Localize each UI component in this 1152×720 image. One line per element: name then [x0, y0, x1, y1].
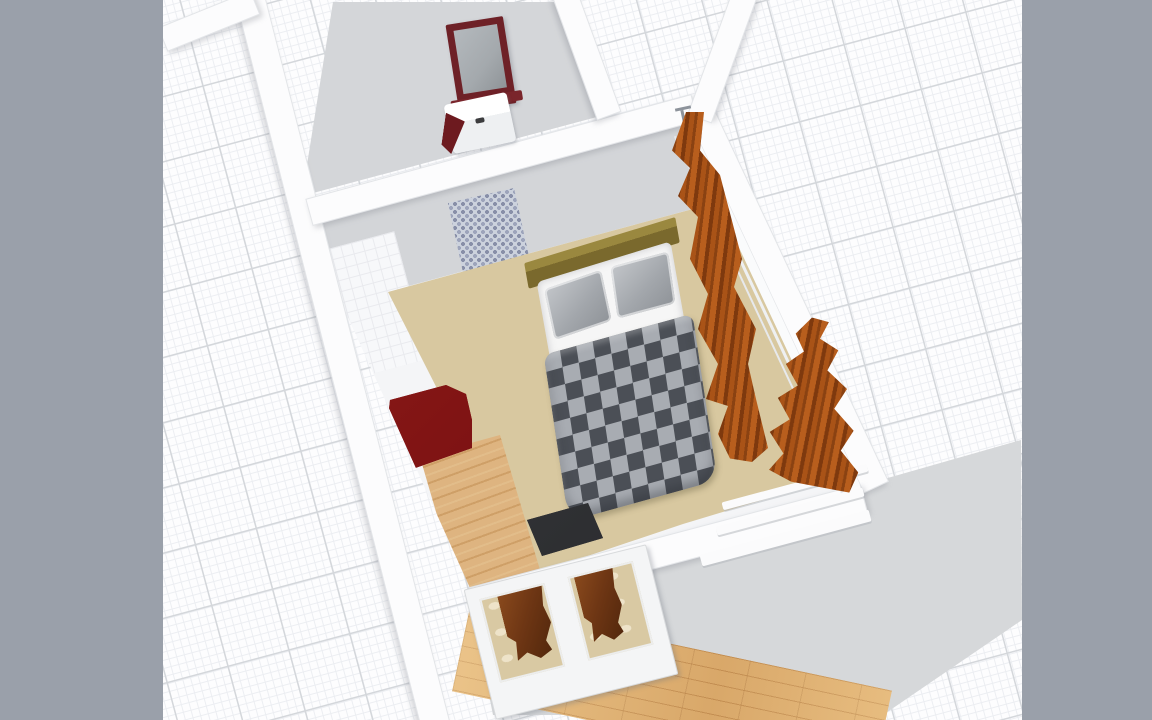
mirror-glass	[453, 24, 506, 94]
interior-curtain-through-glass	[497, 584, 559, 665]
window-pane-right	[568, 561, 654, 661]
floor-plan-app-window	[0, 0, 1152, 720]
3d-viewport-canvas[interactable]	[163, 0, 1022, 720]
interior-curtain-through-glass-2	[573, 566, 629, 646]
faucet	[475, 117, 485, 124]
left-side-panel	[0, 0, 163, 720]
window-pane-left	[479, 583, 565, 683]
right-side-panel	[1022, 0, 1152, 720]
